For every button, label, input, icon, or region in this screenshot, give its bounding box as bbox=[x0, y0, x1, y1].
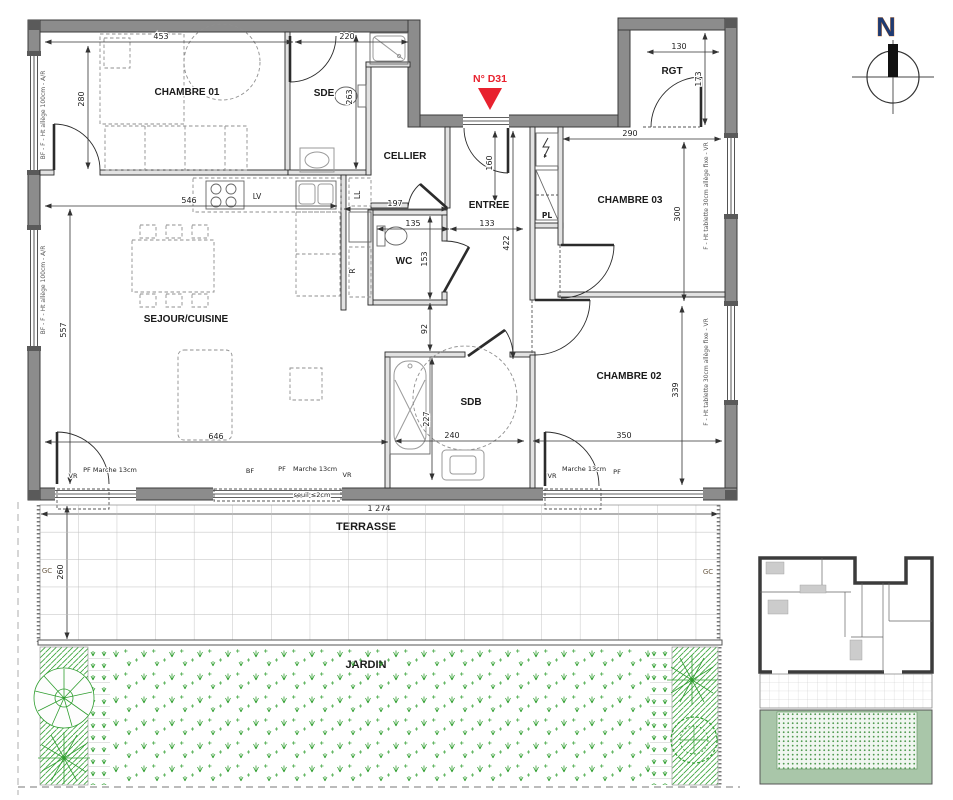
room-cellier: CELLIER bbox=[384, 151, 428, 162]
dim-sejour-width: 546 bbox=[181, 196, 196, 205]
room-rgt: RGT bbox=[661, 66, 682, 77]
label-vr-1: VR bbox=[69, 472, 78, 480]
compass: N bbox=[852, 12, 934, 114]
room-sejour: SEJOUR/CUISINE bbox=[144, 314, 229, 325]
electrical-panel bbox=[536, 133, 558, 166]
bathtub bbox=[390, 357, 430, 454]
label-pf-2: PF bbox=[278, 465, 286, 473]
dim-wc-height: 153 bbox=[420, 251, 429, 266]
unit-marker-triangle bbox=[478, 88, 502, 110]
tree-round-left bbox=[34, 668, 94, 728]
room-sde: SDE bbox=[314, 88, 335, 99]
dim-wc-width: 135 bbox=[405, 219, 420, 228]
note-left-window-1: BF - F - Ht allège 100cm - A/R bbox=[40, 71, 47, 160]
label-pf-3: PF bbox=[613, 468, 621, 476]
room-chambre02: CHAMBRE 02 bbox=[596, 371, 661, 382]
compass-needle bbox=[888, 44, 898, 77]
north-label: N bbox=[876, 12, 896, 42]
shrub-row-left bbox=[88, 647, 110, 785]
room-wc: WC bbox=[396, 256, 413, 267]
dining-table bbox=[132, 225, 214, 307]
dim-chambre01-height: 280 bbox=[77, 91, 86, 106]
dim-chambre03-height: 300 bbox=[673, 206, 682, 221]
room-pl: PL bbox=[542, 211, 552, 220]
dim-sde-height: 263 bbox=[345, 89, 354, 104]
mini-overview-plan bbox=[760, 558, 932, 784]
note-left-window-2: BF - F - Ht allège 100cm - A/R bbox=[40, 246, 47, 335]
mini-terrace bbox=[760, 674, 932, 708]
room-entree: ENTREE bbox=[469, 200, 510, 211]
dim-rgt-width: 130 bbox=[671, 42, 686, 51]
dim-chambre02-height: 339 bbox=[671, 382, 680, 397]
label-lave-linge: LL bbox=[353, 190, 362, 199]
room-chambre03: CHAMBRE 03 bbox=[597, 195, 662, 206]
dim-sdb-height: 227 bbox=[422, 411, 431, 426]
terrace-tiles bbox=[40, 505, 720, 642]
note-right-window-1: F - Ht tablette 30cm allège fixe - VR bbox=[703, 142, 710, 250]
dim-cellier-width: 197 bbox=[387, 199, 402, 208]
dim-entree-height: 160 bbox=[485, 155, 494, 170]
dim-chambre01-width: 453 bbox=[153, 32, 168, 41]
dim-sejour-height: 557 bbox=[59, 322, 68, 337]
label-marche-3: Marche 13cm bbox=[562, 465, 606, 473]
mini-building-outline bbox=[760, 558, 932, 672]
room-sdb: SDB bbox=[460, 397, 481, 408]
dim-chambre03-width: 290 bbox=[622, 129, 637, 138]
label-pf-marche-1: PF Marche 13cm bbox=[83, 466, 137, 474]
label-marche-2: Marche 13cm bbox=[293, 465, 337, 473]
shower bbox=[370, 33, 408, 64]
doors bbox=[54, 36, 701, 486]
dim-sde-width: 220 bbox=[339, 32, 354, 41]
floor-plan: 453 220 280 130 173 290 300 546 557 646 … bbox=[0, 0, 953, 800]
dim-sdb-width: 240 bbox=[444, 431, 459, 440]
room-chambre01: CHAMBRE 01 bbox=[154, 87, 219, 98]
label-seuil: seuil ≤2cm bbox=[294, 491, 331, 499]
label-refrigerateur: R bbox=[348, 268, 357, 273]
dim-hall-gap: 92 bbox=[420, 324, 429, 334]
label-vr-2: VR bbox=[343, 471, 352, 479]
exterior-walls bbox=[28, 18, 737, 500]
label-vr-3: VR bbox=[548, 472, 557, 480]
garden bbox=[18, 647, 740, 787]
terrace-edge bbox=[38, 640, 722, 645]
label-lave-vaisselle: LV bbox=[253, 192, 262, 201]
mini-garden-planting bbox=[777, 712, 917, 769]
note-right-window-2: F - Ht tablette 30cm allège fixe - VR bbox=[703, 318, 710, 426]
unit-number-label: N° D31 bbox=[473, 73, 507, 85]
dim-chambre02-width: 350 bbox=[616, 431, 631, 440]
dim-sejour-width2: 646 bbox=[208, 432, 223, 441]
kitchen bbox=[193, 178, 341, 296]
windows bbox=[27, 51, 738, 509]
dim-rgt-height: 173 bbox=[694, 71, 703, 86]
label-bf: BF bbox=[246, 467, 254, 475]
shrub-row-right bbox=[650, 647, 672, 785]
unit-marker: N° D31 bbox=[473, 73, 507, 110]
dim-hall-height: 422 bbox=[502, 235, 511, 250]
washbasin bbox=[442, 450, 484, 480]
lawn bbox=[110, 647, 650, 785]
planting-bed-right bbox=[672, 647, 718, 785]
dim-entree-width: 133 bbox=[479, 219, 494, 228]
